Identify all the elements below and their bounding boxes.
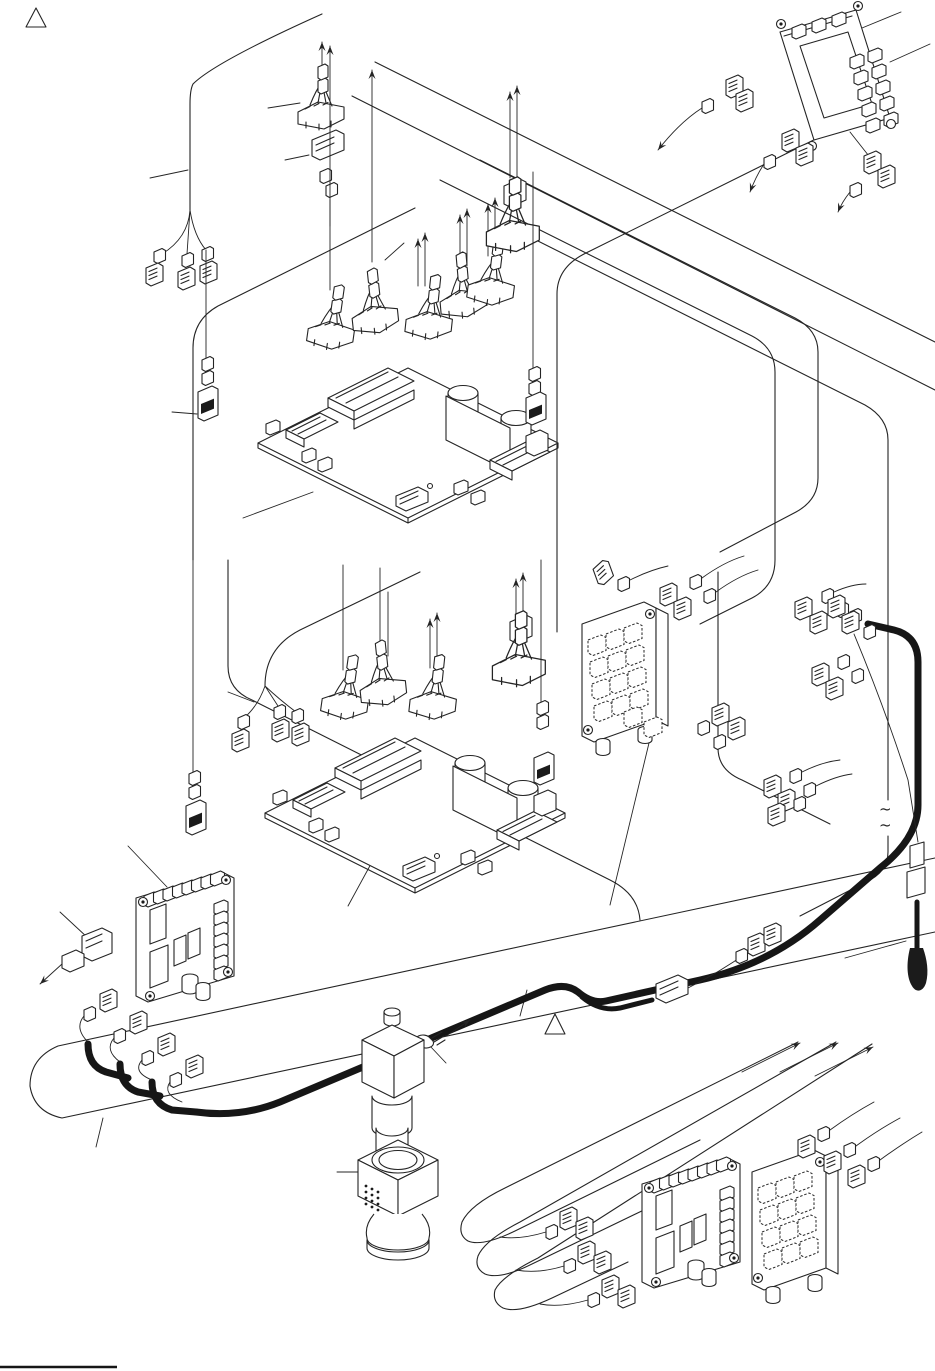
main-pcb-upper <box>258 368 558 523</box>
cable-break-mark: ~ <box>879 816 892 834</box>
lamp-unit <box>358 1140 438 1260</box>
warning-triangle-center-icon <box>545 1014 565 1034</box>
connector-housing <box>298 64 344 130</box>
driver-board-cable-chain <box>80 989 203 1102</box>
driver-pcb-bottom-left <box>136 871 234 1002</box>
warning-triangle-top-left-icon <box>26 8 46 27</box>
wiring-diagram-canvas: ~ ~ <box>0 0 935 1371</box>
top-left-cable-assemblies <box>146 42 344 421</box>
driver-pcb-bottom-right <box>642 1157 740 1288</box>
relay-pcb-middle-right <box>582 602 668 756</box>
relay-pcb-bottom-right <box>752 1150 838 1304</box>
routing-loom-outlines <box>30 14 935 1310</box>
driver-board-connector-arrow <box>40 928 112 984</box>
inline-connector <box>656 923 781 1003</box>
diagram-page: ~ ~ <box>0 0 935 1371</box>
io-pcb-top-right <box>777 2 899 151</box>
main-pcb-lower <box>265 738 565 893</box>
